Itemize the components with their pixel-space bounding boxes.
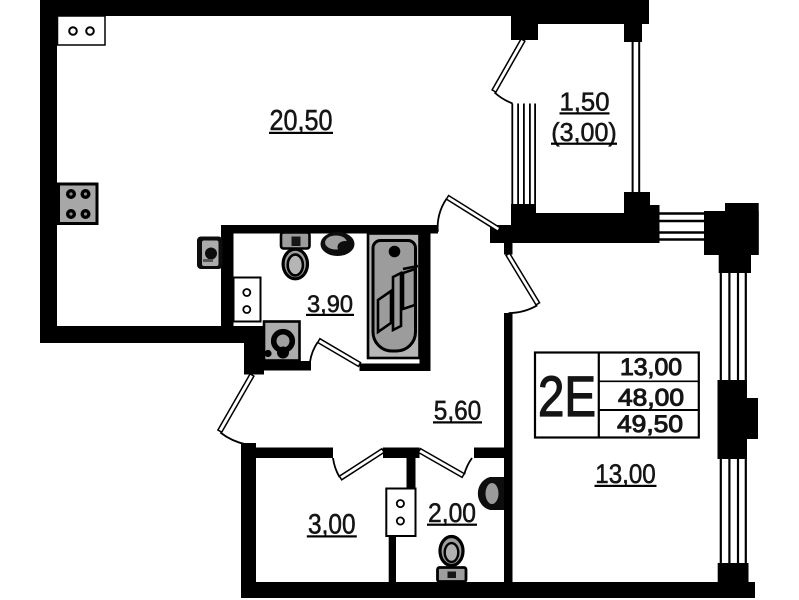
- svg-text:13,00: 13,00: [620, 354, 682, 381]
- svg-text:49,50: 49,50: [617, 411, 683, 438]
- svg-text:3,00: 3,00: [308, 509, 356, 540]
- svg-text:(3,00): (3,00): [551, 117, 617, 147]
- svg-text:1,50: 1,50: [560, 87, 610, 117]
- svg-text:2,00: 2,00: [428, 498, 476, 528]
- svg-text:13,00: 13,00: [595, 459, 656, 489]
- svg-text:48,00: 48,00: [618, 385, 684, 412]
- svg-text:5,60: 5,60: [434, 396, 482, 426]
- svg-text:2Е: 2Е: [538, 365, 596, 429]
